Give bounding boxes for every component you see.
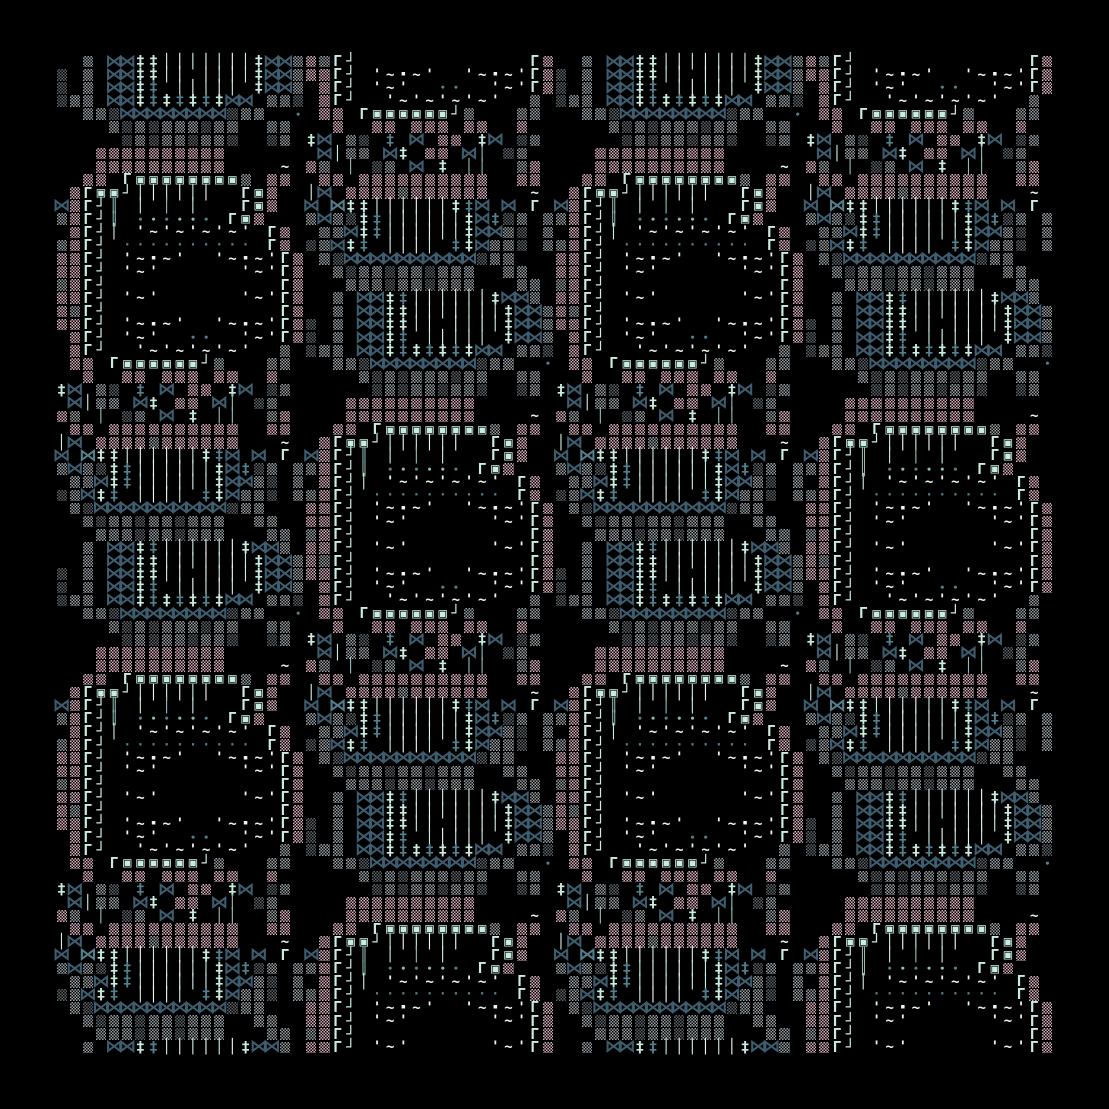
- dither-block-fill: [254, 503, 264, 515]
- dither-block-fill: [937, 384, 947, 396]
- glyph-tilde-wave: ~: [160, 752, 173, 765]
- dither-block-fill: [135, 135, 145, 147]
- dither-block-fill: [543, 503, 553, 515]
- dither-block-fill: [517, 240, 527, 252]
- glyph-dither-block: [568, 265, 581, 278]
- glyph-dither-block: [265, 370, 278, 383]
- dither-block-fill: [569, 411, 579, 423]
- dither-block-fill: [898, 871, 908, 883]
- dither-block-fill: [135, 516, 145, 528]
- glyph-dither-block: [568, 278, 581, 291]
- glyph-tilde-wave: ~: [226, 752, 239, 765]
- dither-block-fill: [950, 398, 960, 410]
- dither-block-fill: [425, 779, 435, 791]
- dither-block-fill: [122, 516, 132, 528]
- glyph-tick: ': [712, 725, 725, 738]
- dither-block-fill: [83, 555, 93, 567]
- glyph-tick: ': [620, 292, 633, 305]
- glyph-dither-block: [1015, 147, 1028, 160]
- glyph-dither-block: [541, 555, 554, 568]
- dither-block-fill: [1016, 266, 1026, 278]
- glyph-dither-block: [804, 462, 817, 475]
- glyph-dither-block: [94, 384, 107, 397]
- dither-block-fill: [885, 897, 895, 909]
- glyph-dither-block: [213, 134, 226, 147]
- glyph-square-spiral: ▣: [200, 673, 213, 686]
- glyph-dither-block: [436, 384, 449, 397]
- glyph-tilde-wave: ~: [502, 541, 515, 554]
- glyph-dither-block: [344, 397, 357, 410]
- glyph-bowtie: ⋈: [883, 147, 896, 160]
- dither-block-fill: [517, 174, 527, 186]
- glyph-dither-block: [988, 857, 1001, 870]
- dither-block-fill: [569, 700, 579, 712]
- dither-block-fill: [162, 647, 172, 659]
- glyph-middot: ·: [936, 489, 949, 502]
- dither-block-fill: [582, 516, 592, 528]
- glyph-dither-block: [318, 489, 331, 502]
- dither-block-fill: [162, 923, 172, 935]
- glyph-dither-block: [423, 370, 436, 383]
- glyph-tilde-wave: ~: [752, 292, 765, 305]
- glyph-vertical-bar: │: [186, 555, 199, 568]
- glyph-dither-block: [502, 226, 515, 239]
- glyph-dither-block: [647, 515, 660, 528]
- glyph-square-spiral: ▣: [134, 673, 147, 686]
- glyph-dither-block: [1015, 712, 1028, 725]
- glyph-tick: ': [1015, 541, 1028, 554]
- glyph-dither-block: [1015, 384, 1028, 397]
- dither-block-fill: [333, 108, 343, 120]
- glyph-dither-block: [791, 778, 804, 791]
- dither-block-fill: [622, 135, 632, 147]
- dither-block-fill: [885, 174, 895, 186]
- dither-block-fill: [188, 516, 198, 528]
- glyph-dither-block: [384, 883, 397, 896]
- glyph-dither-block: [55, 265, 68, 278]
- dither-block-fill: [122, 647, 132, 659]
- dither-block-fill: [1016, 739, 1026, 751]
- glyph-dither-block: [121, 909, 134, 922]
- dither-block-fill: [333, 831, 343, 843]
- glyph-dither-block: [699, 423, 712, 436]
- glyph-tick: ': [515, 81, 528, 94]
- glyph-corner-gamma: Γ: [357, 607, 370, 620]
- dither-block-fill: [451, 266, 461, 278]
- glyph-tilde-wave: ~: [699, 725, 712, 738]
- dither-block-fill: [333, 292, 343, 304]
- glyph-dither-block: [936, 633, 949, 646]
- glyph-bowtie: ⋈: [752, 449, 765, 462]
- glyph-dither-block: [1015, 765, 1028, 778]
- dither-block-fill: [109, 660, 119, 672]
- dither-block-fill: [819, 555, 829, 567]
- glyph-dither-block: [305, 844, 318, 857]
- dither-block-fill: [241, 490, 251, 502]
- glyph-tilde-wave: ~: [909, 502, 922, 515]
- glyph-dither-block: [476, 752, 489, 765]
- dither-block-fill: [595, 647, 605, 659]
- glyph-dither-block: [1015, 160, 1028, 173]
- glyph-dither-block: [804, 568, 817, 581]
- dither-block-fill: [911, 910, 921, 922]
- glyph-dither-block: [436, 896, 449, 909]
- glyph-tick: ': [265, 265, 278, 278]
- glyph-dither-block: [568, 357, 581, 370]
- glyph-cross-dagger: ‡: [186, 909, 199, 922]
- dither-block-fill: [858, 871, 868, 883]
- glyph-dither-block: [305, 239, 318, 252]
- glyph-corner-hook: ┘: [594, 844, 607, 857]
- glyph-bowtie: ⋈: [239, 883, 252, 896]
- glyph-dither-block: [804, 528, 817, 541]
- dither-block-fill: [609, 621, 619, 633]
- glyph-dither-block: [462, 108, 475, 121]
- glyph-dither-block: [765, 489, 778, 502]
- dither-block-fill: [911, 174, 921, 186]
- glyph-dither-block: [68, 292, 81, 305]
- dither-block-fill: [464, 108, 474, 120]
- glyph-dither-block: [765, 870, 778, 883]
- glyph-bowtie: ⋈: [489, 633, 502, 646]
- dither-block-fill: [530, 135, 540, 147]
- dither-block-fill: [858, 766, 868, 778]
- glyph-dither-block: [909, 173, 922, 186]
- glyph-vertical-bar: │: [186, 200, 199, 213]
- glyph-corner-gamma: Γ: [331, 594, 344, 607]
- glyph-dither-block: [660, 620, 673, 633]
- dither-block-fill: [832, 319, 842, 331]
- glyph-dither-block: [226, 923, 239, 936]
- glyph-corner-gamma: Γ: [831, 94, 844, 107]
- glyph-vertical-bar: │: [686, 200, 699, 213]
- glyph-bowtie: ⋈: [739, 384, 752, 397]
- dither-block-fill: [871, 121, 881, 133]
- glyph-dither-block: [896, 673, 909, 686]
- glyph-vertical-bar: │: [186, 699, 199, 712]
- dither-block-fill: [871, 766, 881, 778]
- glyph-dither-block: [1015, 344, 1028, 357]
- glyph-dither-block: [791, 489, 804, 502]
- dither-block-fill: [819, 253, 829, 265]
- dither-block-fill: [306, 516, 316, 528]
- dither-block-fill: [438, 871, 448, 883]
- glyph-dither-block: [108, 647, 121, 660]
- glyph-dither-block: [68, 265, 81, 278]
- glyph-dither-block: [712, 147, 725, 160]
- glyph-dither-block: [186, 121, 199, 134]
- dither-block-fill: [556, 792, 566, 804]
- dither-block-fill: [793, 752, 803, 764]
- glyph-dither-block: [778, 594, 791, 607]
- glyph-bowtie: ⋈: [555, 699, 568, 712]
- glyph-dither-block: [147, 923, 160, 936]
- dither-block-fill: [819, 463, 829, 475]
- dither-block-fill: [832, 174, 842, 186]
- glyph-dither-block: [68, 804, 81, 817]
- dither-block-fill: [871, 174, 881, 186]
- glyph-dither-block: [765, 410, 778, 423]
- glyph-tick: ': [870, 515, 883, 528]
- glyph-dither-block: [620, 121, 633, 134]
- glyph-dither-block: [555, 410, 568, 423]
- dither-block-fill: [687, 161, 697, 173]
- glyph-dither-block: [765, 200, 778, 213]
- dither-block-fill: [214, 161, 224, 173]
- glyph-dither-block: [305, 331, 318, 344]
- dither-block-fill: [714, 121, 724, 133]
- dither-block-fill: [122, 437, 132, 449]
- glyph-dither-block: [226, 633, 239, 646]
- dither-block-fill: [517, 108, 527, 120]
- glyph-dither-block: [541, 213, 554, 226]
- dither-block-fill: [503, 752, 513, 764]
- glyph-dither-block: [581, 357, 594, 370]
- glyph-dither-block: [541, 81, 554, 94]
- glyph-tick: ': [712, 226, 725, 239]
- glyph-tick: ': [962, 94, 975, 107]
- glyph-tick: ': [515, 541, 528, 554]
- dither-block-fill: [819, 82, 829, 94]
- dither-block-fill: [214, 516, 224, 528]
- glyph-dither-block: [936, 121, 949, 134]
- dither-block-fill: [569, 187, 579, 199]
- glyph-dither-block: [883, 370, 896, 383]
- glyph-dither-block: [515, 883, 528, 896]
- dither-block-fill: [83, 858, 93, 870]
- dither-block-fill: [963, 674, 973, 686]
- dither-block-fill: [530, 476, 540, 488]
- glyph-bowtie: ⋈: [68, 397, 81, 410]
- glyph-dither-block: [765, 686, 778, 699]
- dither-block-fill: [793, 490, 803, 502]
- glyph-dither-block: [357, 370, 370, 383]
- glyph-dither-block: [213, 647, 226, 660]
- dither-block-fill: [517, 135, 527, 147]
- glyph-corner-gamma: Γ: [81, 344, 94, 357]
- dither-block-fill: [687, 621, 697, 633]
- glyph-dither-block: [370, 384, 383, 397]
- glyph-dither-block: [857, 765, 870, 778]
- glyph-dither-block: [515, 739, 528, 752]
- glyph-dither-block: [857, 647, 870, 660]
- glyph-dither-block: [1028, 870, 1041, 883]
- glyph-dither-block: [423, 765, 436, 778]
- dither-block-fill: [871, 161, 881, 173]
- glyph-corner-hook: ┘: [949, 108, 962, 121]
- glyph-dither-block: [909, 370, 922, 383]
- glyph-bowtie: ⋈: [568, 462, 581, 475]
- dither-block-fill: [753, 608, 763, 620]
- glyph-dither-block: [870, 265, 883, 278]
- dither-block-fill: [175, 516, 185, 528]
- glyph-tick: ': [213, 226, 226, 239]
- dither-block-fill: [306, 161, 316, 173]
- dither-block-fill: [885, 766, 895, 778]
- dither-block-fill: [57, 568, 67, 580]
- glyph-tilde-wave: ~: [173, 725, 186, 738]
- glyph-tilde-wave: ~: [949, 476, 962, 489]
- glyph-square-spiral: ▣: [1001, 449, 1014, 462]
- dither-block-fill: [372, 161, 382, 173]
- glyph-dither-block: [436, 265, 449, 278]
- glyph-dither-block: [476, 252, 489, 265]
- dither-block-fill: [793, 766, 803, 778]
- glyph-dither-block: [200, 647, 213, 660]
- glyph-dither-block: [305, 318, 318, 331]
- dither-block-fill: [438, 621, 448, 633]
- glyph-dither-block: [436, 134, 449, 147]
- dither-block-fill: [411, 766, 421, 778]
- dither-block-fill: [451, 384, 461, 396]
- glyph-dither-block: [568, 725, 581, 738]
- glyph-tilde-wave: ~: [476, 568, 489, 581]
- glyph-dither-block: [370, 370, 383, 383]
- dither-block-fill: [333, 306, 343, 318]
- glyph-square-spiral: ▣: [909, 607, 922, 620]
- glyph-vertical-bar: │: [936, 804, 949, 817]
- dither-block-fill: [937, 766, 947, 778]
- glyph-dither-block: [265, 134, 278, 147]
- dither-block-fill: [372, 871, 382, 883]
- dither-block-fill: [674, 621, 684, 633]
- glyph-bowtie: ⋈: [568, 896, 581, 909]
- glyph-dither-block: [108, 423, 121, 436]
- dither-block-fill: [70, 792, 80, 804]
- dither-block-fill: [83, 595, 93, 607]
- glyph-dither-block: [200, 620, 213, 633]
- glyph-dither-block: [147, 423, 160, 436]
- glyph-tick: ': [988, 594, 1001, 607]
- glyph-dither-block: [1041, 515, 1054, 528]
- glyph-vertical-bar: │: [81, 397, 94, 410]
- dither-block-fill: [135, 121, 145, 133]
- glyph-dither-block: [831, 357, 844, 370]
- glyph-bowtie: ⋈: [502, 200, 515, 213]
- glyph-dither-block: [936, 397, 949, 410]
- dither-block-fill: [1029, 279, 1039, 291]
- dither-block-fill: [319, 503, 329, 515]
- glyph-dither-block: [292, 778, 305, 791]
- dither-block-fill: [425, 174, 435, 186]
- dither-block-fill: [425, 398, 435, 410]
- glyph-dither-block: [699, 134, 712, 147]
- glyph-dither-block: [68, 357, 81, 370]
- glyph-dither-block: [633, 147, 646, 160]
- dither-block-fill: [83, 95, 93, 107]
- glyph-dither-block: [384, 173, 397, 186]
- glyph-tilde-wave: ~: [173, 226, 186, 239]
- dither-block-fill: [306, 490, 316, 502]
- glyph-tick: ': [213, 318, 226, 331]
- dither-block-fill: [530, 95, 540, 107]
- dither-block-fill: [779, 674, 789, 686]
- dither-block-fill: [451, 884, 461, 896]
- glyph-bowtie: ⋈: [817, 647, 830, 660]
- glyph-bowtie: ⋈: [528, 331, 541, 344]
- glyph-dither-block: [357, 134, 370, 147]
- dither-block-fill: [582, 56, 592, 68]
- dither-block-fill: [1042, 516, 1052, 528]
- dither-block-fill: [556, 69, 566, 81]
- dither-block-fill: [845, 910, 855, 922]
- dither-block-fill: [674, 424, 684, 436]
- glyph-dither-block: [673, 147, 686, 160]
- dither-block-fill: [898, 674, 908, 686]
- glyph-dither-block: [265, 173, 278, 186]
- glyph-dither-block: [568, 200, 581, 213]
- glyph-dither-block: [423, 883, 436, 896]
- glyph-dither-block: [410, 765, 423, 778]
- dither-block-fill: [1042, 542, 1052, 554]
- dither-block-fill: [280, 884, 290, 896]
- glyph-dither-block: [68, 344, 81, 357]
- dither-block-fill: [766, 121, 776, 133]
- glyph-middot: ·: [397, 489, 410, 502]
- glyph-dither-block: [318, 528, 331, 541]
- dither-block-fill: [438, 910, 448, 922]
- dither-block-fill: [267, 634, 277, 646]
- glyph-corner-gamma: Γ: [278, 331, 291, 344]
- dither-block-fill: [766, 700, 776, 712]
- glyph-tilde-wave: ~: [147, 725, 160, 738]
- glyph-dither-block: [265, 410, 278, 423]
- dither-block-fill: [135, 411, 145, 423]
- glyph-dither-block: [804, 344, 817, 357]
- glyph-bowtie: ⋈: [909, 660, 922, 673]
- glyph-corner-gamma: Γ: [108, 857, 121, 870]
- glyph-dither-block: [147, 121, 160, 134]
- glyph-dither-block: [923, 870, 936, 883]
- glyph-vertical-bar: │: [410, 449, 423, 462]
- glyph-corner-hook: ┘: [200, 357, 213, 370]
- glyph-dither-block: [305, 541, 318, 554]
- dither-block-fill: [425, 687, 435, 699]
- glyph-dither-block: [94, 147, 107, 160]
- glyph-dither-block: [555, 791, 568, 804]
- glyph-corner-hook: ┘: [699, 857, 712, 870]
- glyph-vertical-bar: │: [476, 660, 489, 673]
- dither-block-fill: [753, 463, 763, 475]
- glyph-square-spiral: ▣: [436, 108, 449, 121]
- glyph-tick: ': [765, 791, 778, 804]
- dither-block-fill: [122, 424, 132, 436]
- dither-block-fill: [622, 121, 632, 133]
- glyph-corner-gamma: Γ: [331, 94, 344, 107]
- glyph-tilde-wave: ~: [384, 515, 397, 528]
- dither-block-fill: [503, 253, 513, 265]
- dither-block-fill: [635, 647, 645, 659]
- dither-block-fill: [411, 174, 421, 186]
- glyph-dither-block: [528, 607, 541, 620]
- dither-block-fill: [214, 621, 224, 633]
- dither-block-fill: [135, 910, 145, 922]
- dither-block-fill: [372, 266, 382, 278]
- glyph-vertical-bar: │: [660, 568, 673, 581]
- glyph-dither-block: [68, 200, 81, 213]
- glyph-dither-block: [936, 883, 949, 896]
- glyph-dither-block: [134, 633, 147, 646]
- dither-block-fill: [609, 884, 619, 896]
- glyph-dither-block: [462, 883, 475, 896]
- dither-block-fill: [398, 371, 408, 383]
- glyph-dither-block: [633, 410, 646, 423]
- glyph-dither-block: [55, 594, 68, 607]
- glyph-dither-block: [581, 108, 594, 121]
- glyph-dither-block: [462, 173, 475, 186]
- dither-block-fill: [845, 358, 855, 370]
- glyph-dither-block: [160, 633, 173, 646]
